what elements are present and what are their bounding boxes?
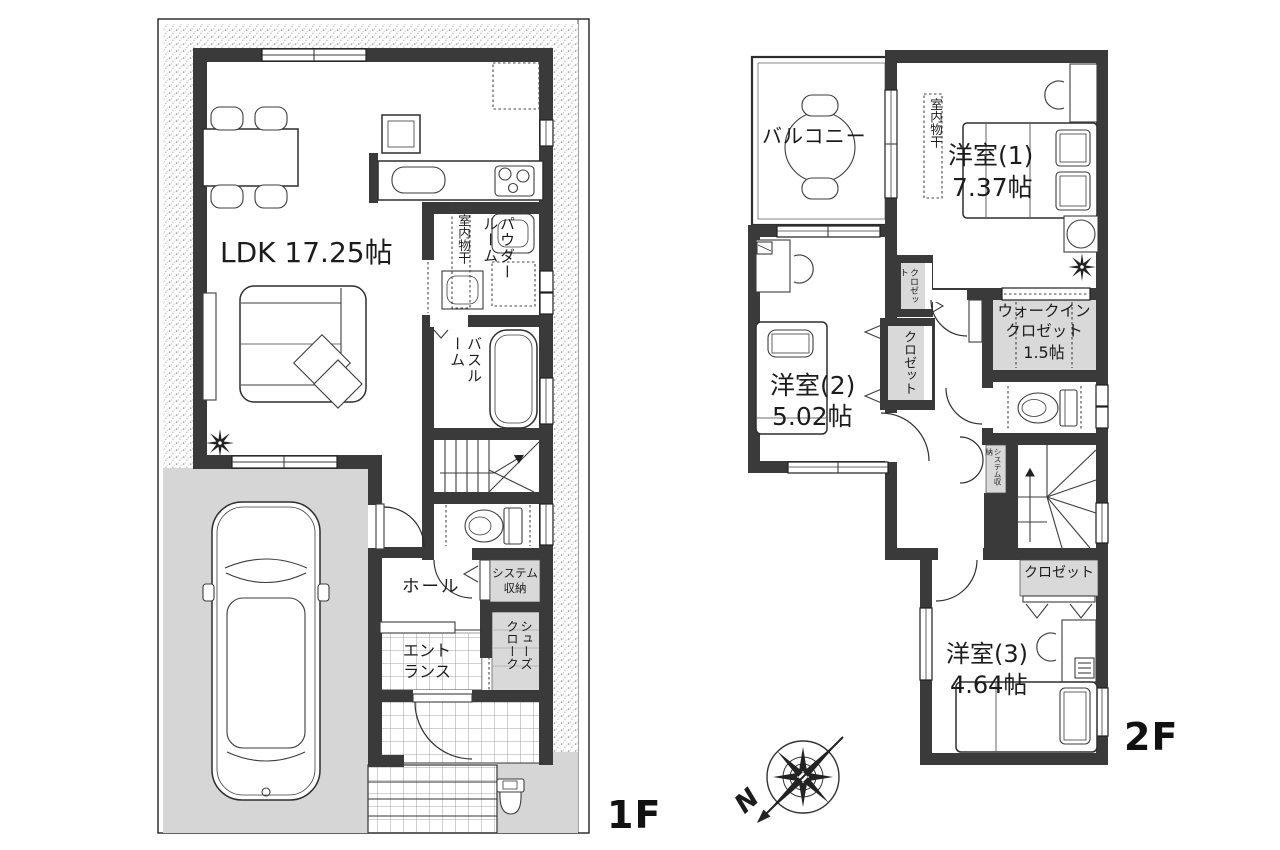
room2-size-label: 5.02帖 <box>772 403 853 432</box>
bathtub-icon <box>490 330 537 428</box>
room1-size-label: 7.37帖 <box>952 174 1033 203</box>
room2-label: 洋室(2) <box>770 372 855 401</box>
walkin-closet-size-label: 1.5帖 <box>990 344 1098 362</box>
ldk-label: LDK 17.25帖 <box>220 237 393 269</box>
kitchen-sink-icon <box>392 167 445 193</box>
cupboard-icon <box>382 115 420 153</box>
system-storage-2f-label: システム収納 <box>988 448 1001 492</box>
balcony-label: バルコニー <box>762 125 867 148</box>
shoes-cloak-label: シューズクローク <box>500 620 532 678</box>
car-icon <box>203 502 329 800</box>
system-storage-1f-label: システム収納 <box>489 566 541 596</box>
entrance-label: エントランス <box>396 641 458 683</box>
balcony-chair-icon <box>802 178 838 199</box>
room1-label: 洋室(1) <box>948 142 1033 171</box>
floor1-label: 1F <box>607 794 661 838</box>
kitchen-counter-icon <box>378 161 543 200</box>
exterior-steps <box>368 765 497 833</box>
room3-label: 洋室(3) <box>946 641 1028 669</box>
indoor-drying-1f-label: 室内物干 <box>454 214 470 272</box>
stairs-2f <box>1018 445 1096 548</box>
floorplan-page: LDK 17.25帖 パウダールーム 室内物干 バスルーム ホール システム収納… <box>0 0 1280 850</box>
floorplan-drawing <box>0 0 1280 850</box>
closet-mid-label: クロゼット <box>897 330 915 398</box>
laundry-basket-icon <box>1064 216 1098 252</box>
desk-room1-icon <box>1045 64 1097 122</box>
powder-room-label: パウダールーム <box>479 216 515 286</box>
plant-icon <box>1068 253 1096 281</box>
closet-lower-label: クロゼット <box>1022 565 1096 581</box>
bathroom-label: バスルーム <box>448 336 482 388</box>
walkin-closet-label-line2: クロゼット <box>990 323 1098 341</box>
closet-upper-box <box>893 255 943 317</box>
closet-upper-label: クロゼット <box>904 268 918 312</box>
washing-machine-icon <box>442 271 483 309</box>
desk-room2-icon <box>756 240 813 292</box>
walkin-closet-label-line1: ウォークイン <box>990 303 1098 321</box>
hall-label: ホール <box>402 577 461 597</box>
porch-tile-floor <box>380 702 543 763</box>
toilet-2f <box>1008 386 1081 430</box>
plant-icon <box>206 429 234 457</box>
tv-board-icon <box>203 293 216 400</box>
compass-icon <box>757 737 843 823</box>
room3-size-label: 4.64帖 <box>950 672 1027 700</box>
stove-icon <box>495 166 534 196</box>
indoor-drying-2f-label: 室内物干 <box>926 98 942 156</box>
floor2-label: 2F <box>1124 716 1178 760</box>
floor1-plan <box>158 19 589 833</box>
desk-room3-icon <box>1037 620 1096 682</box>
balcony-chair-icon <box>802 95 838 116</box>
sofa-icon <box>240 286 366 408</box>
